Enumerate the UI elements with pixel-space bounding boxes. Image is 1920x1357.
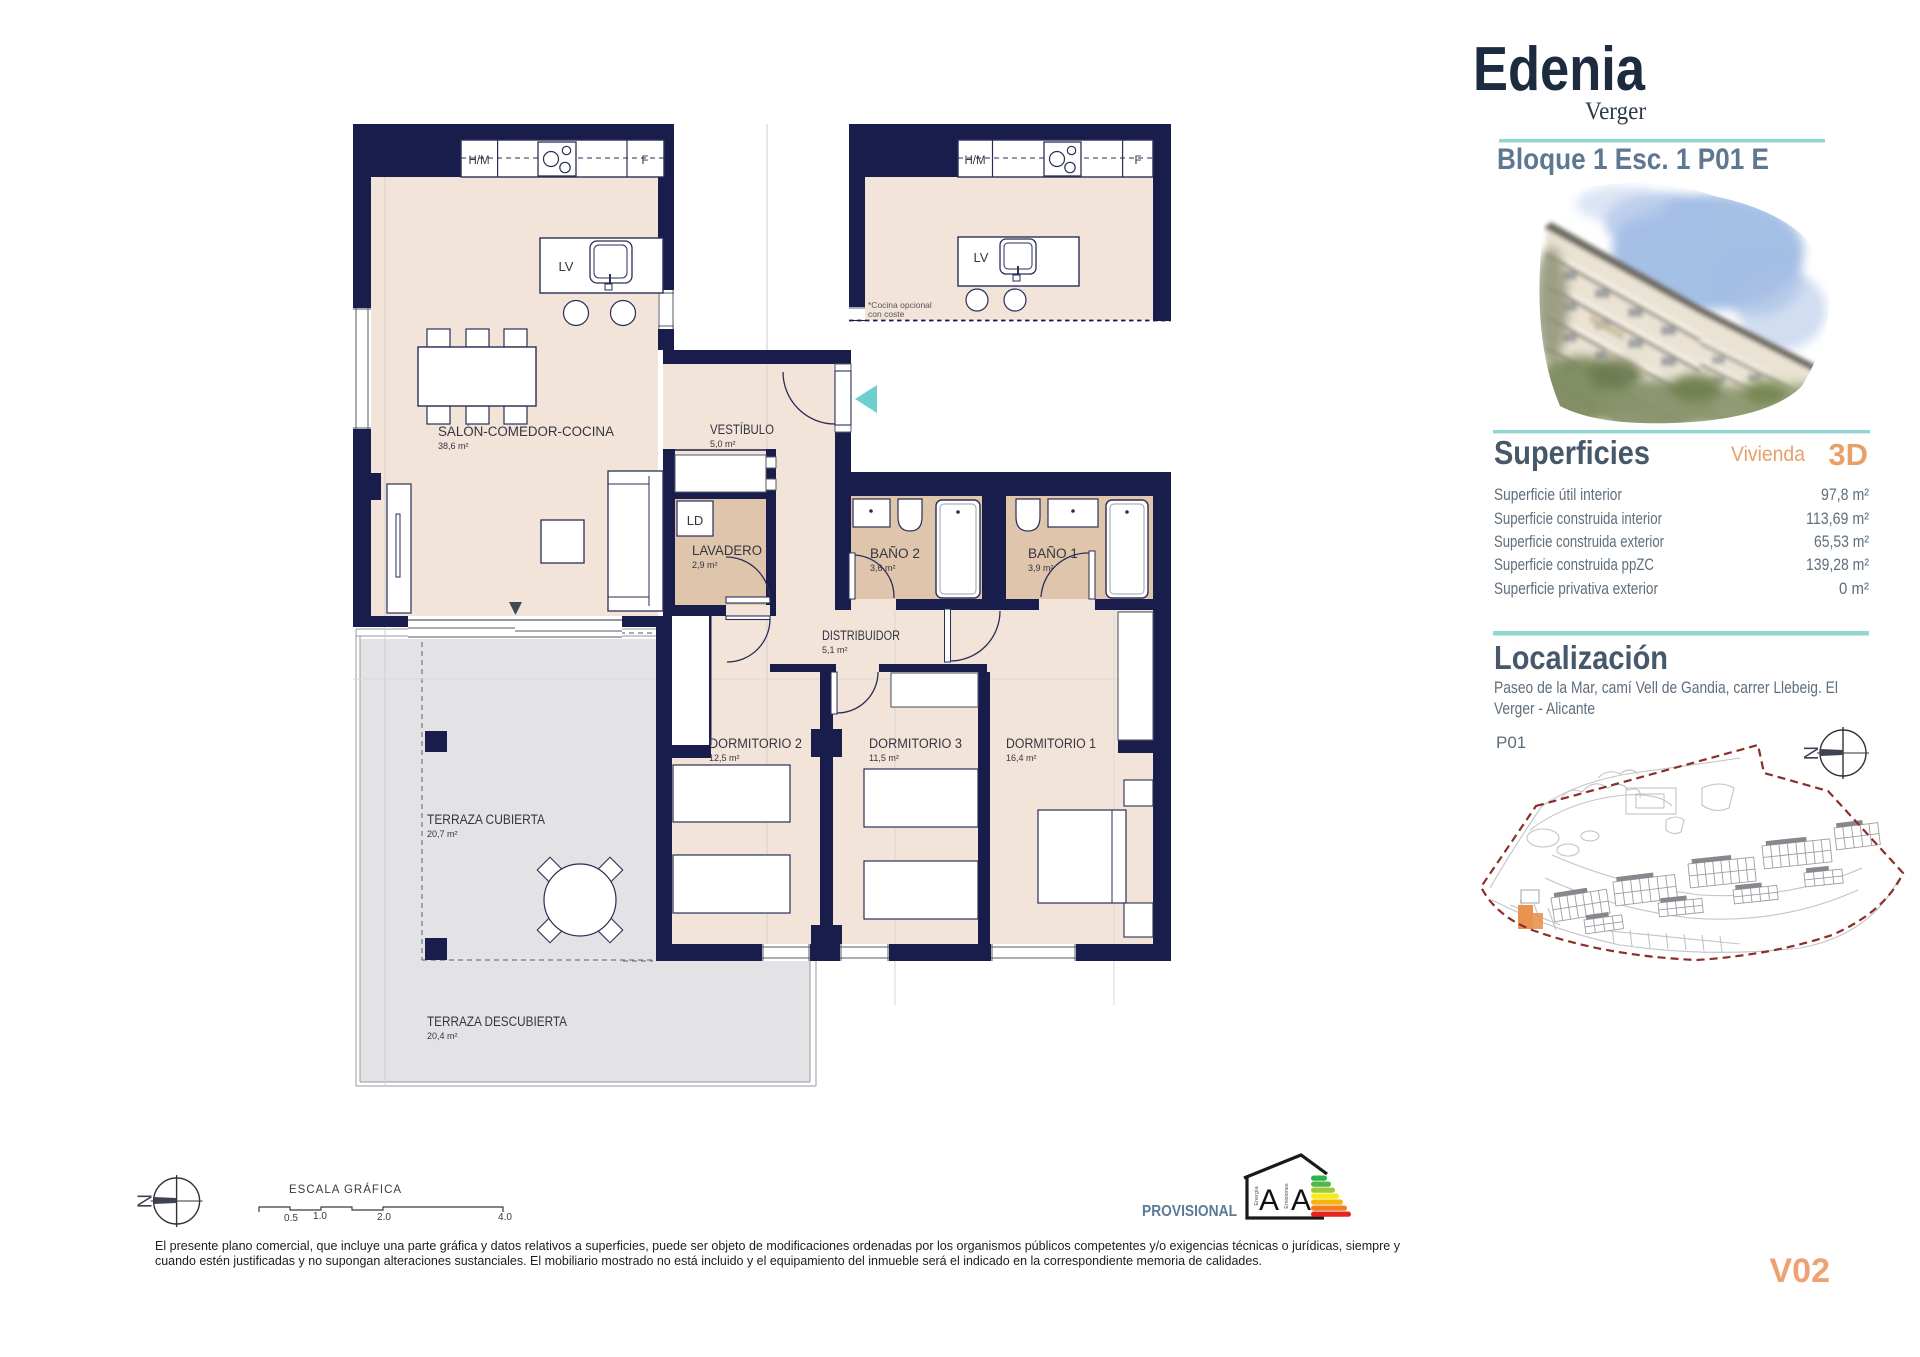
- svg-text:P01: P01: [1496, 733, 1526, 752]
- svg-text:0 m²: 0 m²: [1839, 579, 1869, 598]
- svg-text:LV: LV: [974, 250, 989, 265]
- svg-text:BAÑO 2: BAÑO 2: [870, 546, 920, 561]
- svg-text:DORMITORIO 1: DORMITORIO 1: [1006, 736, 1096, 751]
- svg-text:97,8 m²: 97,8 m²: [1821, 485, 1869, 504]
- svg-text:2.0: 2.0: [377, 1212, 391, 1223]
- svg-text:BAÑO 1: BAÑO 1: [1028, 546, 1078, 561]
- svg-text:Bloque 1 Esc. 1 P01 E: Bloque 1 Esc. 1 P01 E: [1497, 143, 1769, 176]
- svg-text:Superficies: Superficies: [1494, 434, 1650, 471]
- svg-text:LD: LD: [687, 513, 704, 528]
- svg-text:ESCALA GRÁFICA: ESCALA GRÁFICA: [289, 1183, 402, 1196]
- svg-text:3,9 m²: 3,9 m²: [1028, 563, 1054, 573]
- svg-text:3,6 m²: 3,6 m²: [870, 563, 896, 573]
- svg-text:Verger - Alicante: Verger - Alicante: [1494, 699, 1595, 718]
- svg-text:Superficie construida exterior: Superficie construida exterior: [1494, 532, 1664, 551]
- svg-text:4.0: 4.0: [498, 1212, 512, 1223]
- svg-text:DISTRIBUIDOR: DISTRIBUIDOR: [822, 628, 900, 643]
- svg-text:cuando estén justificadas y no: cuando estén justificadas y no supongan …: [155, 1253, 1262, 1268]
- svg-text:N: N: [1801, 746, 1823, 760]
- svg-text:Verger: Verger: [1585, 98, 1647, 125]
- svg-text:El presente plano comercial, q: El presente plano comercial, que incluye…: [155, 1238, 1400, 1253]
- svg-text:Superficie útil interior: Superficie útil interior: [1494, 485, 1622, 504]
- svg-text:DORMITORIO 3: DORMITORIO 3: [869, 736, 962, 751]
- svg-text:Energía: Energía: [1254, 1185, 1260, 1205]
- svg-text:Superficie privativa exterior: Superficie privativa exterior: [1494, 579, 1658, 598]
- svg-text:TERRAZA DESCUBIERTA: TERRAZA DESCUBIERTA: [427, 1014, 567, 1029]
- svg-text:F: F: [1134, 155, 1141, 167]
- svg-text:Superficie construida interior: Superficie construida interior: [1494, 509, 1662, 528]
- svg-text:N: N: [135, 1194, 157, 1208]
- svg-text:16,4 m²: 16,4 m²: [1006, 753, 1037, 763]
- svg-text:A: A: [1291, 1184, 1311, 1217]
- svg-text:VESTÍBULO: VESTÍBULO: [710, 422, 774, 437]
- svg-text:Localización: Localización: [1494, 639, 1668, 676]
- svg-text:TERRAZA CUBIERTA: TERRAZA CUBIERTA: [427, 812, 545, 827]
- svg-text:5,0 m²: 5,0 m²: [710, 439, 736, 449]
- svg-text:0.5: 0.5: [284, 1213, 298, 1224]
- svg-text:12,5 m²: 12,5 m²: [709, 753, 740, 763]
- svg-text:DORMITORIO 2: DORMITORIO 2: [709, 736, 802, 751]
- svg-text:H/M: H/M: [964, 155, 985, 167]
- svg-text:H/M: H/M: [468, 155, 489, 167]
- svg-text:Vivienda: Vivienda: [1731, 442, 1805, 466]
- svg-text:A: A: [1259, 1184, 1279, 1217]
- svg-text:LV: LV: [559, 259, 574, 274]
- svg-text:65,53 m²: 65,53 m²: [1814, 532, 1869, 551]
- svg-text:1.0: 1.0: [313, 1211, 327, 1222]
- svg-text:Emisiones: Emisiones: [1284, 1183, 1290, 1209]
- svg-text:LAVADERO: LAVADERO: [692, 543, 762, 558]
- svg-text:SALÓN-COMEDOR-COCINA: SALÓN-COMEDOR-COCINA: [438, 424, 614, 439]
- svg-text:2,9 m²: 2,9 m²: [692, 560, 718, 570]
- svg-text:113,69 m²: 113,69 m²: [1806, 509, 1869, 528]
- svg-text:5,1 m²: 5,1 m²: [822, 645, 848, 655]
- svg-text:Paseo de la Mar, camí Vell de: Paseo de la Mar, camí Vell de Gandia, ca…: [1494, 678, 1838, 697]
- svg-text:con coste: con coste: [868, 309, 905, 319]
- svg-text:F: F: [641, 155, 648, 167]
- svg-text:139,28 m²: 139,28 m²: [1806, 555, 1869, 574]
- svg-text:Superficie construida ppZC: Superficie construida ppZC: [1494, 555, 1654, 574]
- svg-text:20,4 m²: 20,4 m²: [427, 1031, 458, 1041]
- svg-text:11,5 m²: 11,5 m²: [869, 753, 899, 763]
- svg-text:V02: V02: [1770, 1252, 1831, 1290]
- svg-text:38,6 m²: 38,6 m²: [438, 441, 469, 451]
- svg-text:Edenia: Edenia: [1473, 35, 1645, 104]
- svg-text:PROVISIONAL: PROVISIONAL: [1142, 1203, 1237, 1220]
- svg-text:3D: 3D: [1828, 437, 1868, 472]
- svg-text:20,7 m²: 20,7 m²: [427, 829, 458, 839]
